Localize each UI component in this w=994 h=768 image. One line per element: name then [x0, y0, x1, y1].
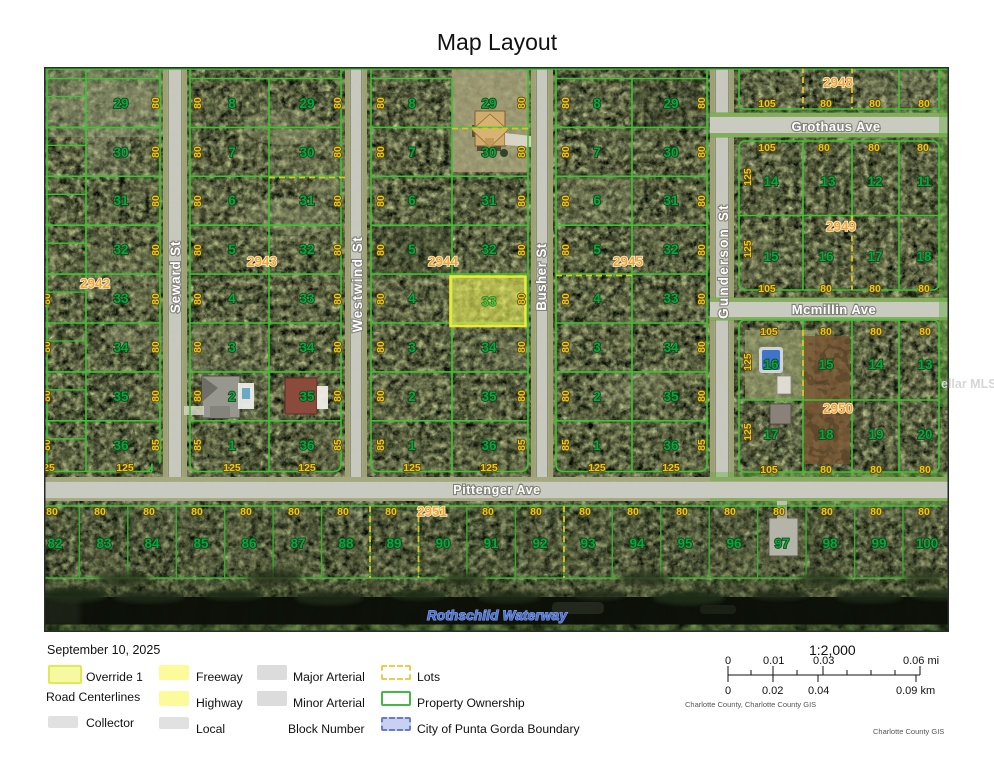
svg-text:80: 80 — [820, 326, 832, 338]
svg-text:0: 0 — [725, 655, 731, 667]
svg-text:85: 85 — [332, 439, 344, 451]
svg-text:80: 80 — [870, 326, 882, 338]
svg-text:80: 80 — [516, 390, 528, 402]
svg-text:100: 100 — [916, 536, 939, 551]
svg-text:80: 80 — [820, 98, 832, 110]
svg-text:80: 80 — [192, 390, 204, 402]
svg-text:Seward St: Seward St — [168, 241, 183, 313]
svg-text:125: 125 — [662, 462, 680, 474]
svg-text:80: 80 — [869, 98, 881, 110]
svg-text:80: 80 — [869, 283, 881, 295]
svg-text:2: 2 — [408, 389, 416, 404]
svg-text:80: 80 — [560, 146, 572, 158]
svg-text:14: 14 — [763, 174, 779, 189]
svg-text:80: 80 — [516, 146, 528, 158]
svg-text:80: 80 — [46, 506, 58, 518]
svg-text:6: 6 — [408, 193, 416, 208]
svg-text:80: 80 — [332, 244, 344, 256]
svg-text:125: 125 — [403, 462, 421, 474]
svg-text:80: 80 — [375, 97, 387, 109]
svg-text:83: 83 — [96, 536, 112, 551]
svg-text:35: 35 — [299, 389, 315, 404]
svg-text:90: 90 — [435, 536, 450, 551]
svg-text:13: 13 — [917, 357, 933, 372]
svg-text:36: 36 — [481, 438, 497, 453]
svg-text:16: 16 — [818, 249, 834, 264]
svg-text:80: 80 — [560, 244, 572, 256]
svg-text:29: 29 — [299, 96, 314, 111]
svg-text:80: 80 — [773, 506, 785, 518]
svg-text:80: 80 — [192, 97, 204, 109]
svg-text:4: 4 — [593, 291, 601, 306]
svg-text:80: 80 — [918, 506, 930, 518]
svg-text:80: 80 — [375, 146, 387, 158]
svg-text:80: 80 — [696, 244, 708, 256]
svg-text:32: 32 — [299, 242, 314, 257]
svg-text:5: 5 — [408, 242, 416, 257]
svg-text:31: 31 — [663, 193, 679, 208]
svg-text:80: 80 — [150, 97, 162, 109]
svg-text:80: 80 — [919, 326, 931, 338]
svg-text:80: 80 — [288, 506, 300, 518]
svg-text:88: 88 — [338, 536, 354, 551]
svg-text:96: 96 — [726, 536, 742, 551]
svg-text:80: 80 — [332, 195, 344, 207]
svg-text:80: 80 — [332, 390, 344, 402]
svg-text:1: 1 — [228, 438, 236, 453]
svg-text:80: 80 — [332, 293, 344, 305]
svg-text:29: 29 — [481, 96, 496, 111]
svg-text:32: 32 — [113, 242, 128, 257]
svg-text:2943: 2943 — [247, 254, 278, 269]
svg-text:80: 80 — [375, 390, 387, 402]
svg-text:125: 125 — [742, 353, 754, 371]
svg-text:8: 8 — [228, 96, 236, 111]
svg-text:Grothaus Ave: Grothaus Ave — [791, 119, 880, 134]
svg-text:80: 80 — [560, 293, 572, 305]
svg-text:80: 80 — [150, 293, 162, 305]
svg-text:80: 80 — [192, 195, 204, 207]
svg-text:80: 80 — [516, 293, 528, 305]
svg-text:80: 80 — [150, 195, 162, 207]
svg-text:125: 125 — [742, 240, 754, 258]
svg-text:80: 80 — [192, 341, 204, 353]
svg-text:94: 94 — [629, 536, 645, 551]
svg-text:80: 80 — [150, 146, 162, 158]
svg-text:80: 80 — [870, 464, 882, 476]
svg-text:80: 80 — [696, 390, 708, 402]
svg-text:0.03: 0.03 — [813, 655, 834, 667]
svg-text:Westwind St: Westwind St — [350, 236, 365, 333]
svg-text:80: 80 — [337, 506, 349, 518]
svg-text:80: 80 — [560, 195, 572, 207]
svg-text:105: 105 — [760, 326, 778, 338]
svg-text:98: 98 — [822, 536, 838, 551]
svg-text:85: 85 — [150, 439, 162, 451]
svg-text:80: 80 — [696, 341, 708, 353]
svg-text:16: 16 — [763, 357, 779, 372]
svg-text:7: 7 — [408, 145, 416, 160]
svg-text:80: 80 — [530, 506, 542, 518]
svg-text:80: 80 — [696, 293, 708, 305]
svg-text:30: 30 — [663, 145, 678, 160]
svg-text:2942: 2942 — [80, 276, 110, 291]
svg-text:125: 125 — [116, 462, 134, 474]
svg-text:125: 125 — [480, 462, 498, 474]
svg-text:33: 33 — [299, 291, 315, 306]
svg-text:85: 85 — [560, 439, 572, 451]
svg-text:85: 85 — [696, 439, 708, 451]
svg-text:97: 97 — [774, 536, 789, 551]
svg-text:80: 80 — [676, 506, 688, 518]
svg-text:0.06 mi: 0.06 mi — [903, 655, 939, 667]
svg-text:82: 82 — [47, 536, 62, 551]
svg-text:80: 80 — [696, 195, 708, 207]
svg-text:12: 12 — [867, 174, 882, 189]
svg-text:80: 80 — [143, 506, 155, 518]
svg-text:7: 7 — [228, 145, 236, 160]
svg-text:3: 3 — [593, 340, 601, 355]
svg-text:0: 0 — [725, 685, 731, 697]
svg-text:0.04: 0.04 — [808, 685, 829, 697]
svg-text:80: 80 — [579, 506, 591, 518]
svg-text:34: 34 — [299, 340, 315, 355]
svg-text:80: 80 — [820, 283, 832, 295]
svg-text:86: 86 — [241, 536, 257, 551]
svg-text:85: 85 — [375, 439, 387, 451]
svg-text:34: 34 — [663, 340, 679, 355]
svg-text:105: 105 — [758, 142, 776, 154]
svg-text:32: 32 — [663, 242, 678, 257]
svg-text:80: 80 — [917, 142, 929, 154]
svg-text:5: 5 — [593, 242, 601, 257]
svg-text:20: 20 — [917, 427, 932, 442]
svg-text:93: 93 — [580, 536, 596, 551]
svg-text:8: 8 — [408, 96, 416, 111]
svg-text:125: 125 — [588, 462, 606, 474]
svg-text:29: 29 — [663, 96, 678, 111]
svg-text:33: 33 — [113, 291, 129, 306]
svg-text:2: 2 — [228, 389, 236, 404]
svg-text:30: 30 — [299, 145, 314, 160]
svg-text:11: 11 — [917, 174, 932, 189]
svg-text:80: 80 — [375, 341, 387, 353]
svg-text:80: 80 — [516, 341, 528, 353]
svg-text:80: 80 — [94, 506, 106, 518]
svg-text:80: 80 — [820, 464, 832, 476]
svg-text:105: 105 — [760, 464, 778, 476]
svg-text:80: 80 — [627, 506, 639, 518]
svg-text:29: 29 — [113, 96, 128, 111]
svg-text:33: 33 — [481, 294, 497, 309]
svg-text:125: 125 — [742, 423, 754, 441]
svg-text:80: 80 — [375, 293, 387, 305]
svg-text:34: 34 — [481, 340, 497, 355]
svg-text:80: 80 — [560, 390, 572, 402]
svg-text:3: 3 — [408, 340, 416, 355]
svg-text:Pittenger Ave: Pittenger Ave — [453, 483, 540, 497]
svg-text:Mcmillin Ave: Mcmillin Ave — [792, 302, 877, 317]
svg-text:92: 92 — [532, 536, 547, 551]
svg-text:80: 80 — [482, 506, 494, 518]
svg-text:80: 80 — [150, 341, 162, 353]
svg-text:13: 13 — [820, 174, 836, 189]
svg-text:Busher St: Busher St — [534, 243, 549, 310]
svg-text:2944: 2944 — [428, 254, 459, 269]
svg-text:80: 80 — [150, 244, 162, 256]
svg-text:4: 4 — [408, 291, 416, 306]
svg-text:0.02: 0.02 — [762, 685, 783, 697]
svg-text:18: 18 — [916, 249, 932, 264]
svg-text:80: 80 — [918, 283, 930, 295]
svg-text:80: 80 — [724, 506, 736, 518]
svg-text:36: 36 — [663, 438, 679, 453]
svg-text:80: 80 — [150, 390, 162, 402]
svg-text:80: 80 — [191, 506, 203, 518]
svg-text:6: 6 — [228, 193, 236, 208]
svg-text:125: 125 — [298, 462, 316, 474]
svg-text:3: 3 — [228, 340, 236, 355]
svg-text:85: 85 — [516, 439, 528, 451]
svg-text:105: 105 — [758, 283, 776, 295]
svg-text:91: 91 — [483, 536, 499, 551]
svg-text:14: 14 — [868, 357, 884, 372]
svg-text:80: 80 — [696, 97, 708, 109]
svg-text:80: 80 — [192, 146, 204, 158]
svg-text:36: 36 — [113, 438, 129, 453]
svg-text:80: 80 — [192, 293, 204, 305]
svg-text:17: 17 — [763, 427, 778, 442]
svg-text:80: 80 — [821, 506, 833, 518]
svg-text:32: 32 — [481, 242, 496, 257]
svg-text:34: 34 — [113, 340, 129, 355]
svg-text:2951: 2951 — [417, 504, 448, 519]
svg-text:30: 30 — [113, 145, 128, 160]
svg-text:80: 80 — [818, 142, 830, 154]
svg-text:31: 31 — [481, 193, 497, 208]
svg-text:31: 31 — [299, 193, 315, 208]
svg-text:125: 125 — [742, 168, 754, 186]
svg-text:5: 5 — [228, 242, 236, 257]
svg-text:Rothschild Waterway: Rothschild Waterway — [427, 608, 568, 623]
svg-text:95: 95 — [677, 536, 693, 551]
svg-text:2: 2 — [593, 389, 601, 404]
svg-text:80: 80 — [560, 97, 572, 109]
svg-text:6: 6 — [593, 193, 601, 208]
svg-text:80: 80 — [375, 195, 387, 207]
svg-text:2949: 2949 — [826, 219, 856, 234]
svg-text:15: 15 — [818, 357, 834, 372]
svg-text:31: 31 — [113, 193, 129, 208]
svg-text:80: 80 — [332, 97, 344, 109]
svg-text:80: 80 — [696, 146, 708, 158]
svg-text:2950: 2950 — [823, 401, 853, 416]
svg-text:30: 30 — [481, 145, 496, 160]
svg-text:80: 80 — [919, 464, 931, 476]
svg-text:87: 87 — [290, 536, 305, 551]
svg-text:1: 1 — [408, 438, 416, 453]
svg-text:0.09 km: 0.09 km — [896, 685, 935, 697]
svg-text:80: 80 — [385, 506, 397, 518]
svg-text:105: 105 — [758, 98, 776, 110]
svg-text:89: 89 — [386, 536, 401, 551]
svg-text:80: 80 — [332, 341, 344, 353]
svg-text:80: 80 — [332, 146, 344, 158]
svg-text:19: 19 — [868, 427, 883, 442]
svg-text:4: 4 — [228, 291, 236, 306]
svg-text:85: 85 — [193, 536, 209, 551]
svg-text:35: 35 — [113, 389, 129, 404]
svg-text:35: 35 — [663, 389, 679, 404]
svg-text:84: 84 — [144, 536, 160, 551]
svg-text:33: 33 — [663, 291, 679, 306]
svg-text:80: 80 — [516, 97, 528, 109]
svg-text:85: 85 — [192, 439, 204, 451]
svg-text:125: 125 — [223, 462, 241, 474]
svg-text:7: 7 — [593, 145, 601, 160]
svg-text:8: 8 — [593, 96, 601, 111]
svg-text:Gunderson St: Gunderson St — [716, 203, 731, 319]
svg-text:2948: 2948 — [823, 75, 854, 90]
svg-text:80: 80 — [375, 244, 387, 256]
svg-text:18: 18 — [818, 427, 834, 442]
svg-text:80: 80 — [560, 341, 572, 353]
svg-text:80: 80 — [918, 98, 930, 110]
svg-text:80: 80 — [192, 244, 204, 256]
svg-text:2945: 2945 — [613, 254, 644, 269]
svg-text:36: 36 — [299, 438, 315, 453]
svg-text:17: 17 — [867, 249, 882, 264]
svg-text:25: 25 — [44, 462, 55, 474]
svg-text:0.01: 0.01 — [763, 655, 784, 667]
svg-text:80: 80 — [240, 506, 252, 518]
svg-text:1: 1 — [593, 438, 601, 453]
svg-text:80: 80 — [870, 506, 882, 518]
svg-text:15: 15 — [763, 249, 779, 264]
svg-text:80: 80 — [516, 244, 528, 256]
svg-text:35: 35 — [481, 389, 497, 404]
svg-text:80: 80 — [868, 142, 880, 154]
svg-text:80: 80 — [516, 195, 528, 207]
svg-text:99: 99 — [871, 536, 886, 551]
